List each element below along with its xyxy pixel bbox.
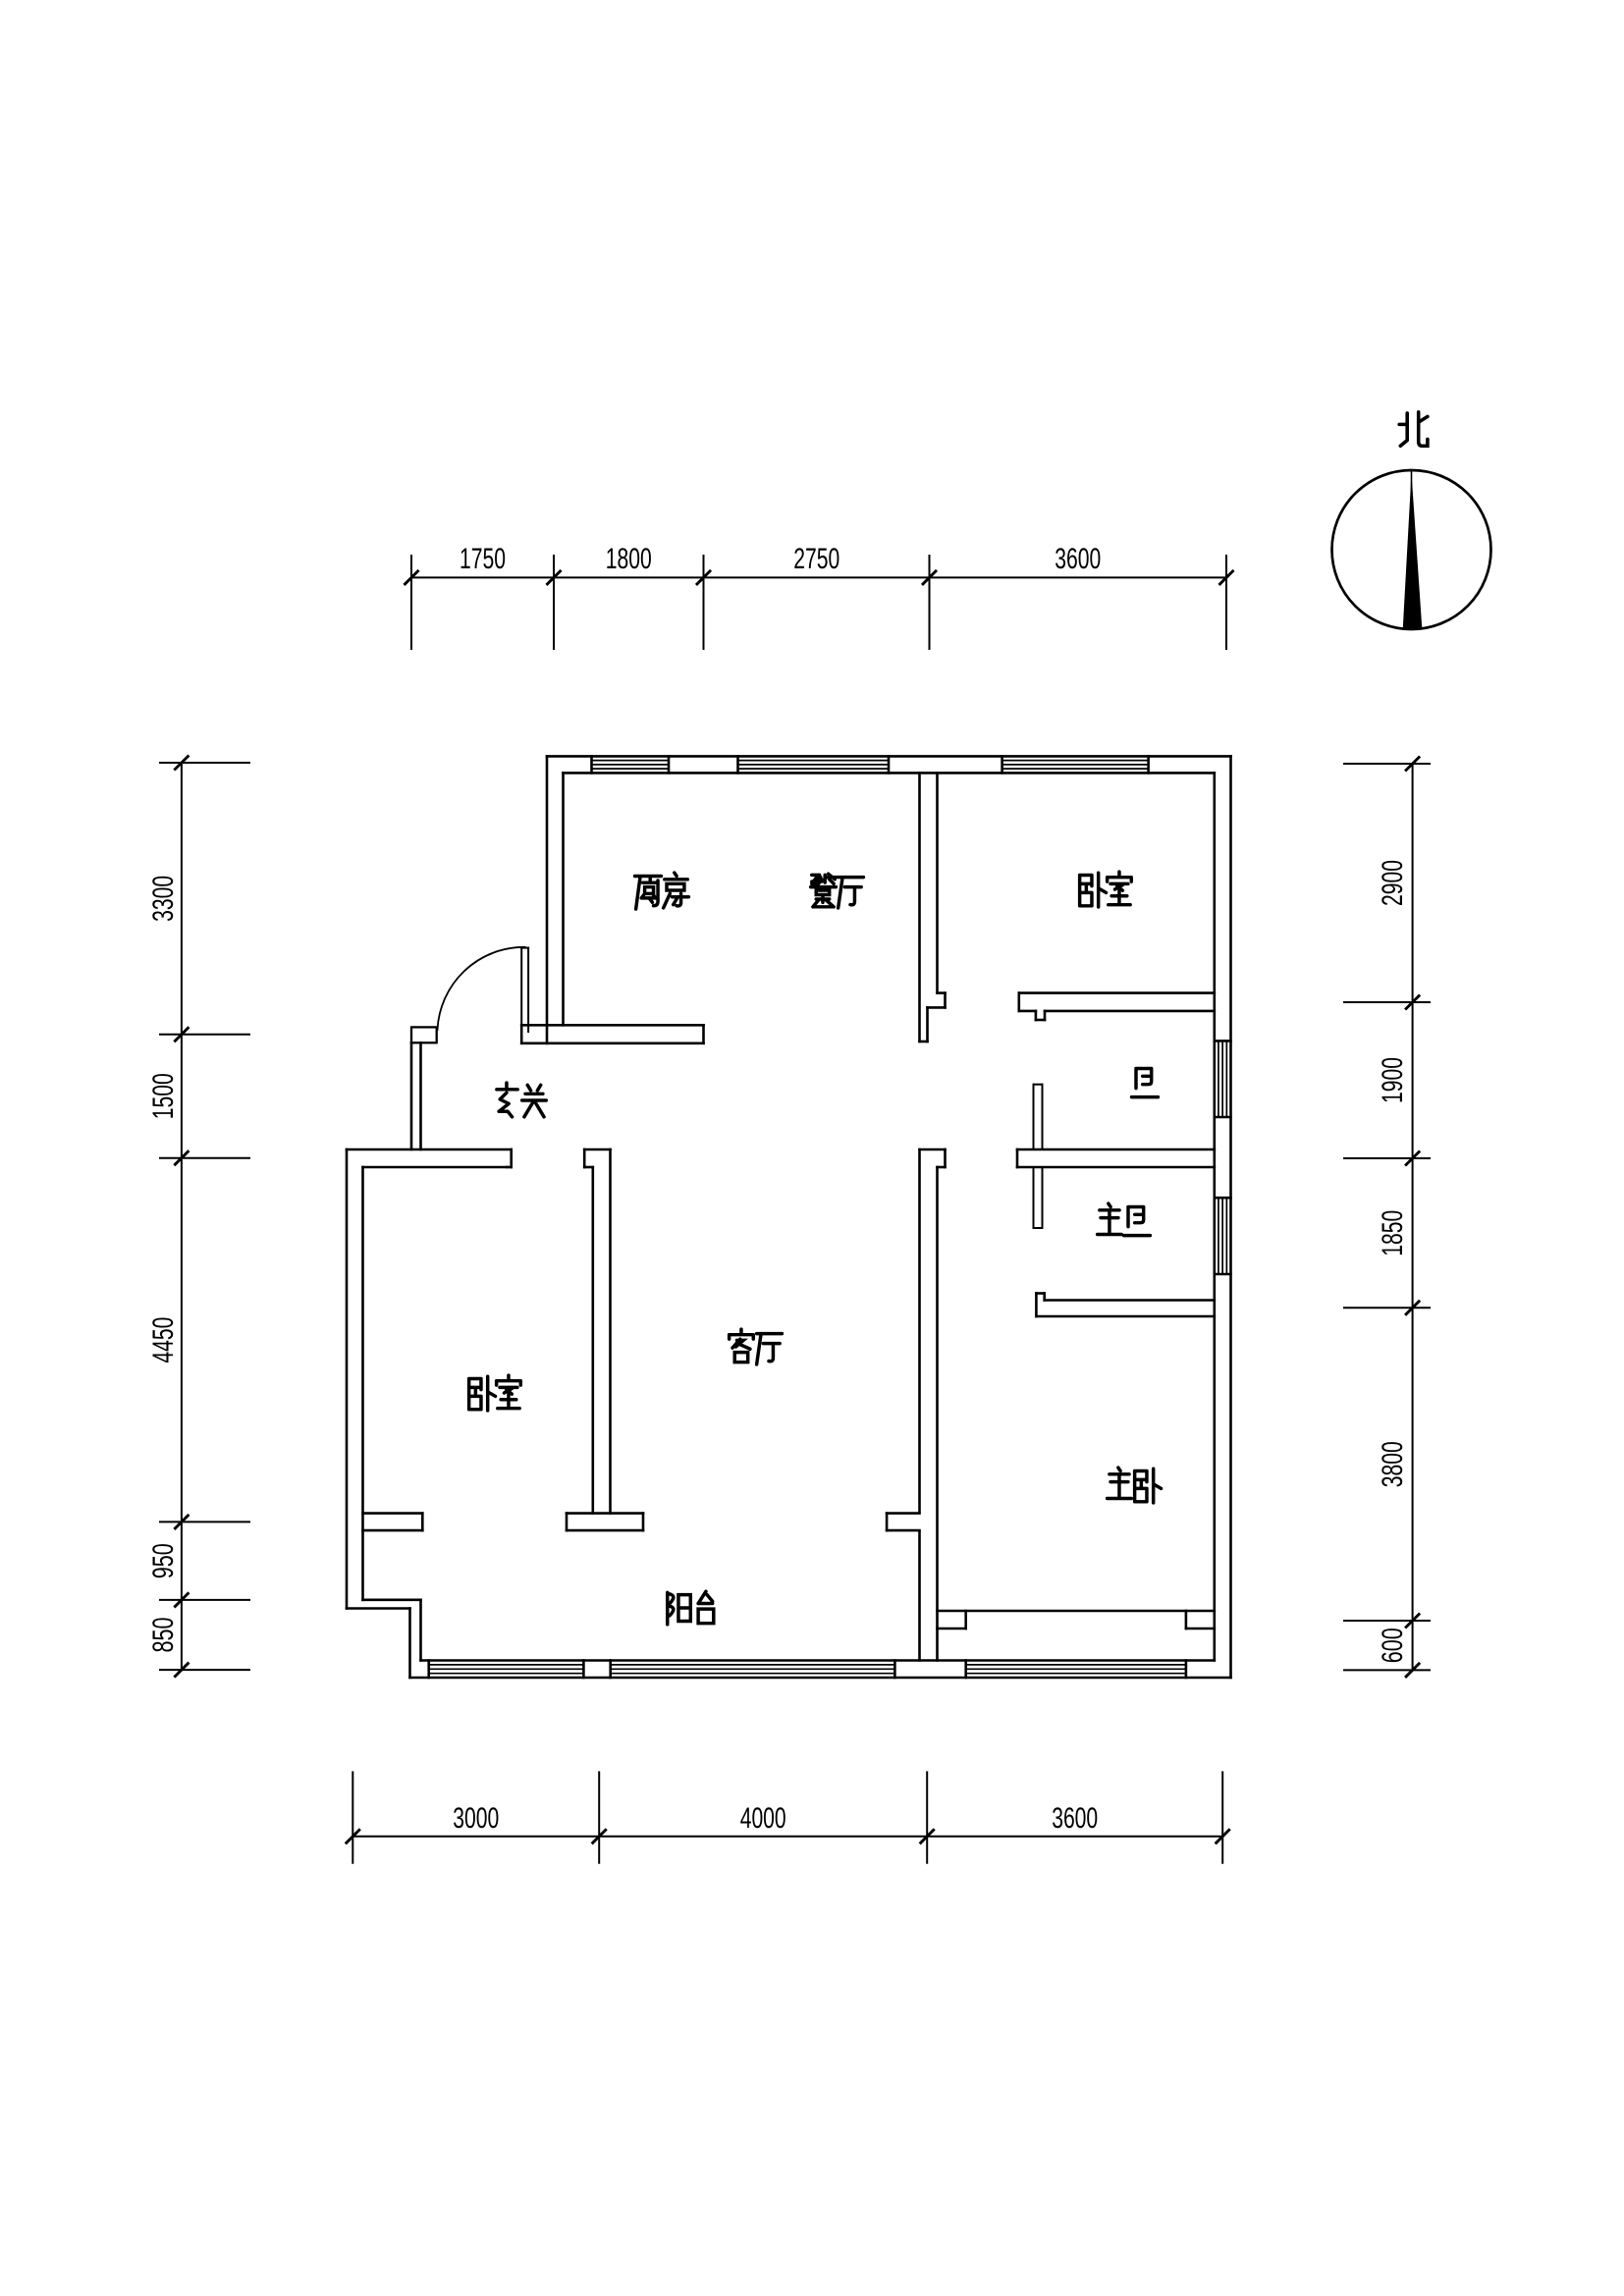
svg-text:4000: 4000 (740, 1802, 786, 1835)
svg-text:4450: 4450 (147, 1317, 180, 1363)
svg-text:3600: 3600 (1052, 1802, 1098, 1835)
svg-text:2900: 2900 (1377, 860, 1409, 906)
svg-text:1850: 1850 (1377, 1210, 1409, 1256)
svg-text:1500: 1500 (147, 1073, 180, 1119)
svg-text:3000: 3000 (453, 1802, 499, 1835)
svg-text:1800: 1800 (606, 543, 652, 575)
svg-text:3800: 3800 (1377, 1441, 1409, 1487)
svg-text:1900: 1900 (1377, 1057, 1409, 1103)
svg-text:3600: 3600 (1055, 543, 1101, 575)
svg-text:2750: 2750 (793, 543, 839, 575)
svg-text:3300: 3300 (147, 876, 180, 922)
svg-text:950: 950 (147, 1543, 180, 1578)
svg-text:600: 600 (1377, 1628, 1409, 1663)
svg-text:850: 850 (147, 1618, 180, 1653)
svg-text:1750: 1750 (460, 543, 506, 575)
